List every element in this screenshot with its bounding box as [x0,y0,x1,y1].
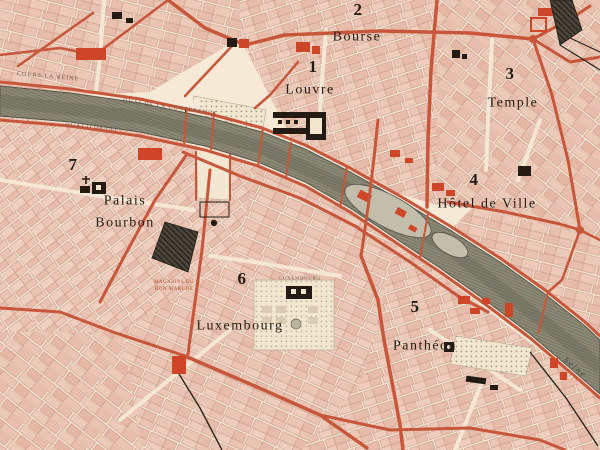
madeleine-church [227,38,237,47]
pantheon-footprint [444,342,454,352]
hotel-de-ville-footprint [518,166,531,176]
place-bastille [576,226,584,234]
paris-map: 1 2 3 4 5 6 7 Louvre Bourse Temple Hôtel… [0,0,600,450]
map-canvas [0,0,600,450]
luxembourg-palace [286,286,312,299]
gare-montparnasse [172,356,186,374]
place-republique [529,35,537,43]
